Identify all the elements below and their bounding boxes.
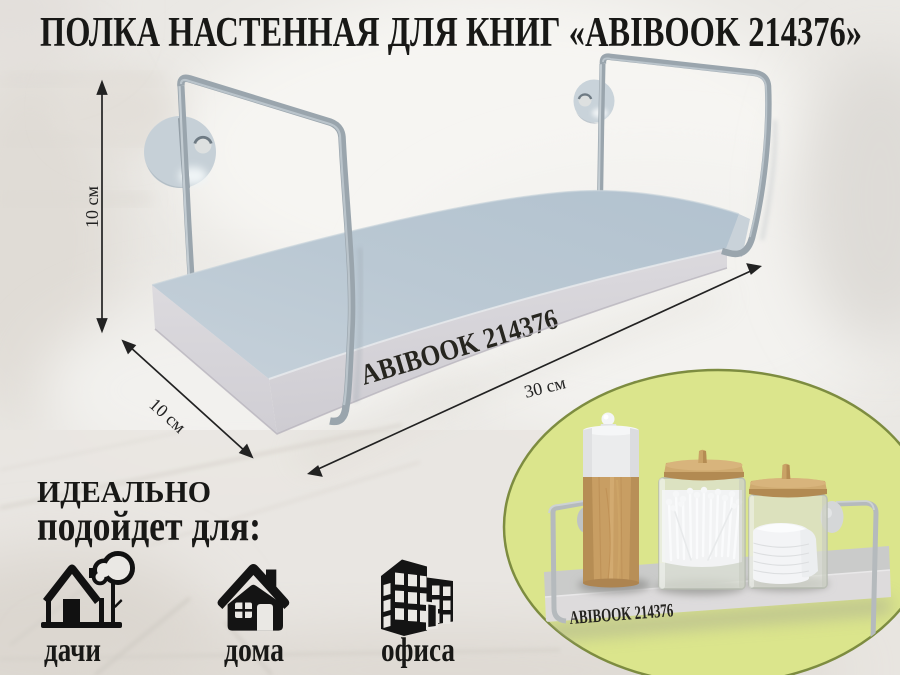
svg-text:дома: дома bbox=[224, 632, 284, 669]
svg-text:ПОЛКА НАСТЕННАЯ ДЛЯ КНИГ «ABIB: ПОЛКА НАСТЕННАЯ ДЛЯ КНИГ «ABIBOOK 214376… bbox=[40, 10, 862, 56]
svg-text:дачи: дачи bbox=[44, 632, 101, 669]
svg-text:офиса: офиса bbox=[381, 632, 455, 669]
svg-text:10 см: 10 см bbox=[82, 186, 102, 228]
svg-text:подойдет для:: подойдет для: bbox=[37, 504, 261, 550]
